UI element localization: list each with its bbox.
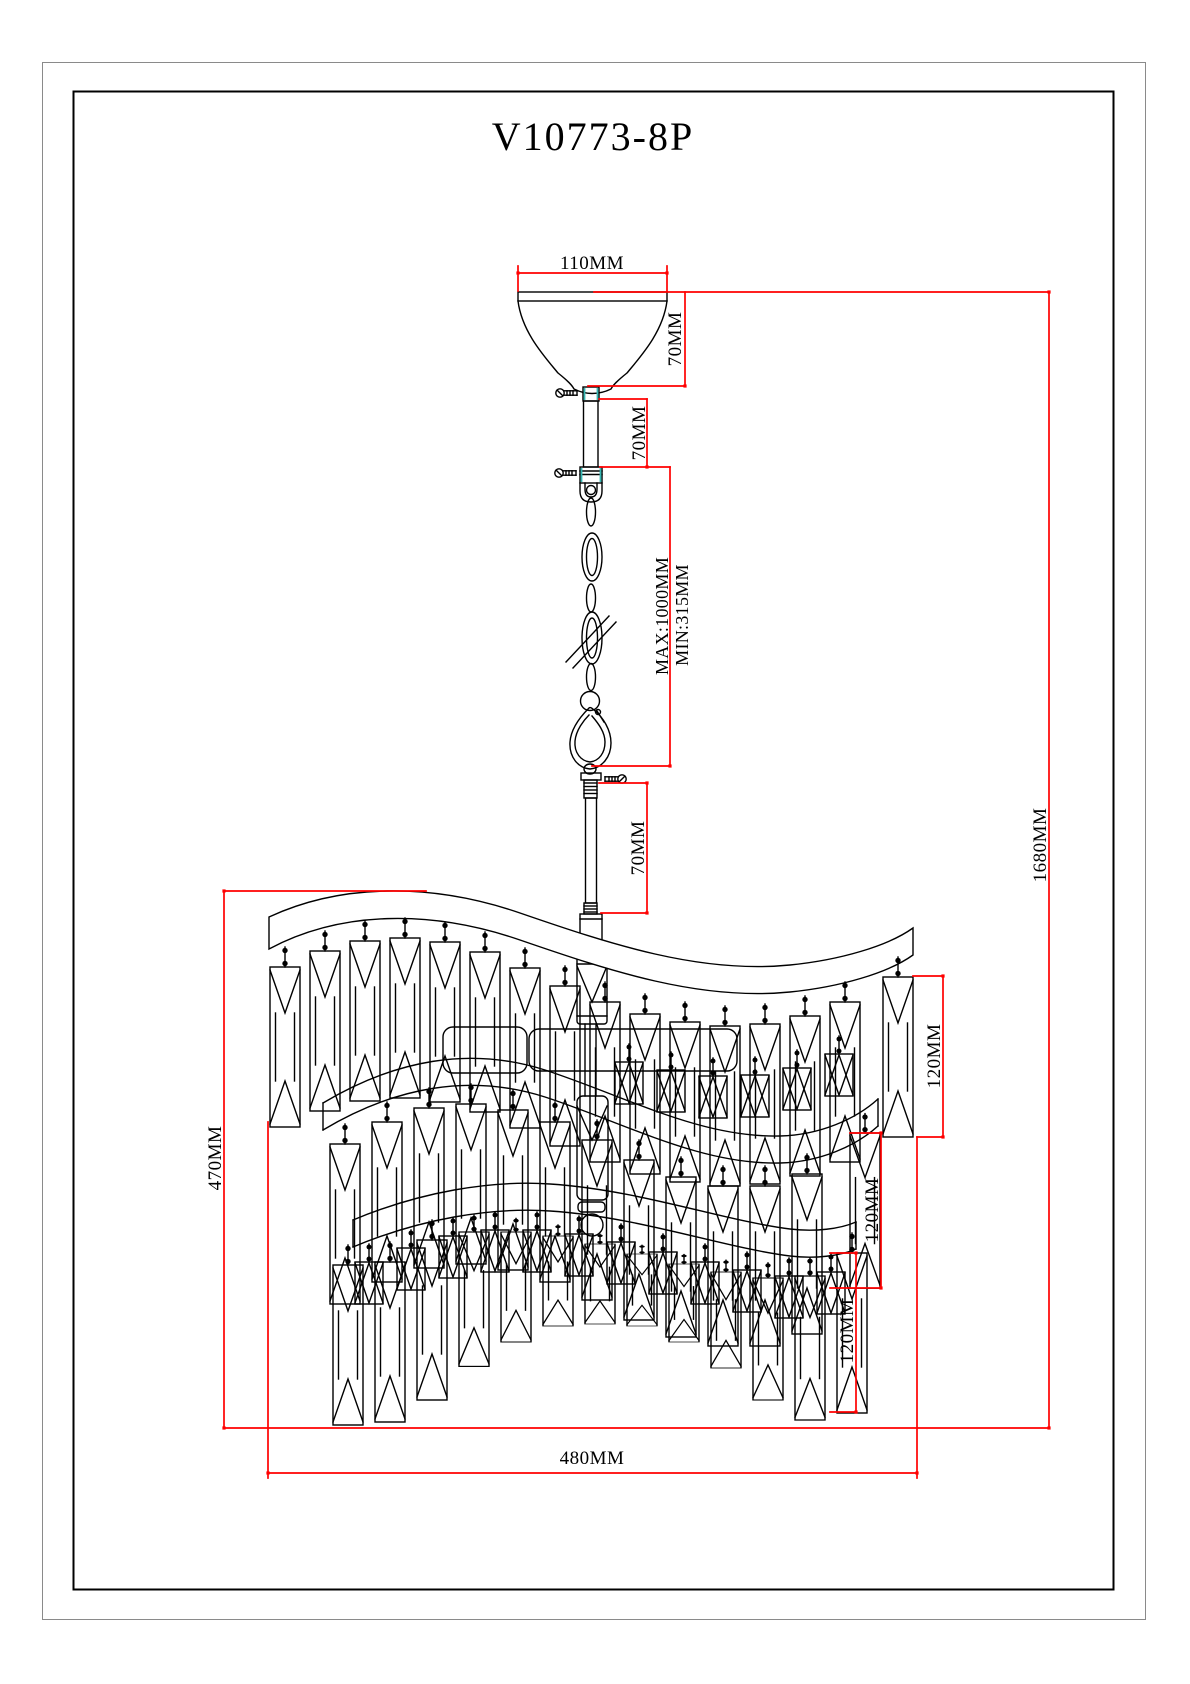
ceiling-canopy xyxy=(518,292,667,401)
dim-chain-min-label: MIN:315MM xyxy=(672,564,692,666)
dim-canopy-width-label: 110MM xyxy=(560,253,624,274)
crystal xyxy=(733,1252,761,1312)
dim-upper-stem-label: 70MM xyxy=(629,406,650,461)
crystal xyxy=(565,1216,593,1276)
hook xyxy=(570,692,611,770)
crystal xyxy=(753,1263,783,1400)
crystal xyxy=(825,1036,853,1096)
lower-hanger xyxy=(580,764,602,940)
crystal xyxy=(750,1004,780,1184)
dim-tier3-crystal-label: 120MM xyxy=(837,1299,858,1364)
crystal xyxy=(501,1218,531,1342)
border-outer xyxy=(43,63,1146,1620)
screw-icon xyxy=(605,775,626,783)
tier3-crystals xyxy=(333,1215,867,1425)
crystal xyxy=(510,948,540,1128)
screw-icon xyxy=(555,469,576,477)
dim-lower-stem-label: 70MM xyxy=(628,821,649,876)
crystal xyxy=(783,1050,811,1110)
crystal xyxy=(630,994,660,1174)
border-inner xyxy=(74,92,1114,1590)
crystal xyxy=(585,1234,615,1324)
tier2-crystals xyxy=(330,1084,880,1346)
screw-icon xyxy=(556,389,577,397)
page-title: V10773-8P xyxy=(492,114,694,159)
crystal xyxy=(350,921,380,1101)
dim-body-height-label: 470MM xyxy=(205,1126,226,1191)
crystal xyxy=(711,1260,741,1368)
upper-stem xyxy=(580,401,602,502)
crystal xyxy=(439,1218,467,1278)
crystal xyxy=(883,957,913,1137)
crystal xyxy=(375,1242,405,1422)
crystal xyxy=(430,922,460,1102)
crystal xyxy=(270,947,300,1127)
dim-canopy-height-label: 70MM xyxy=(665,312,686,367)
crystal xyxy=(657,1052,685,1112)
technical-drawing: V10773-8P xyxy=(0,0,1190,1684)
crystal xyxy=(750,1166,780,1346)
dim-tier2-crystal-label: 120MM xyxy=(862,1178,883,1243)
dim-chain-max-label: MAX:1000MM xyxy=(652,557,672,675)
crystal xyxy=(310,931,340,1111)
dim-body-width-label: 480MM xyxy=(560,1448,625,1469)
crystal xyxy=(397,1230,425,1290)
dim-overall-height-label: 1680MM xyxy=(1030,808,1051,883)
crystal xyxy=(666,1157,696,1337)
tier3-small-crystals xyxy=(355,1212,845,1318)
crystal xyxy=(708,1166,738,1346)
dim-tier1-crystal-label: 120MM xyxy=(924,1024,945,1089)
crystal xyxy=(615,1044,643,1104)
crystal xyxy=(691,1244,719,1304)
drawing-sheet: V10773-8P xyxy=(0,0,1190,1684)
suspension-chain xyxy=(566,498,616,691)
